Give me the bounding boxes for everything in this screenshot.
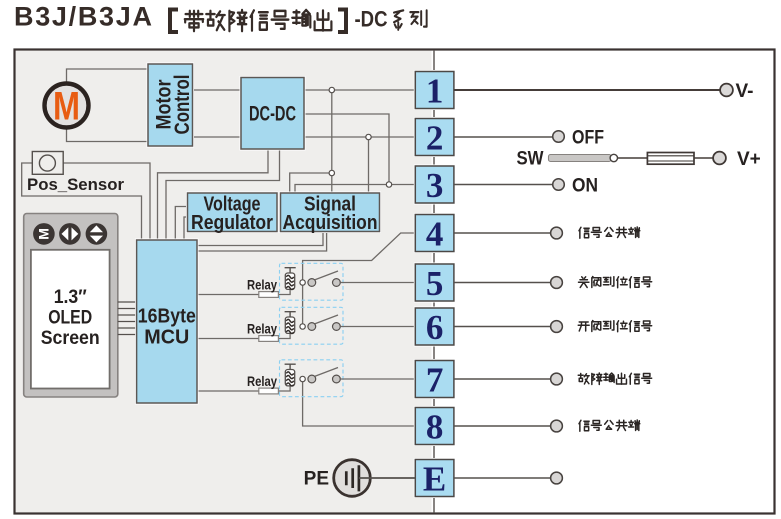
svg-text:Acquisition: Acquisition (283, 212, 378, 234)
svg-text:OFF: OFF (572, 127, 604, 149)
svg-text:Pos_Sensor: Pos_Sensor (27, 175, 124, 194)
svg-text:V-: V- (736, 81, 754, 102)
svg-text:7: 7 (426, 361, 444, 400)
svg-text:4: 4 (426, 215, 444, 254)
svg-text:M: M (53, 85, 80, 129)
svg-text:Screen: Screen (41, 327, 100, 349)
svg-text:SW: SW (517, 148, 545, 170)
svg-text:3: 3 (426, 166, 444, 205)
svg-text:Regulator: Regulator (191, 212, 273, 234)
svg-text:M: M (36, 228, 52, 240)
svg-text:16Byte: 16Byte (138, 306, 196, 328)
svg-text:1.3″: 1.3″ (54, 286, 87, 308)
svg-text:Relay: Relay (247, 373, 277, 389)
svg-text:Relay: Relay (247, 321, 277, 337)
svg-text:Control: Control (171, 75, 194, 135)
svg-text:6: 6 (426, 308, 444, 347)
svg-text:B3J/B3JA: B3J/B3JA (14, 2, 154, 32)
svg-text:5: 5 (426, 264, 444, 303)
svg-text:E: E (423, 460, 446, 499)
svg-text:2: 2 (426, 119, 444, 158)
svg-text:Relay: Relay (247, 277, 277, 293)
svg-text:8: 8 (426, 408, 444, 447)
svg-text:MCU: MCU (144, 327, 189, 349)
svg-text:V+: V+ (737, 149, 761, 170)
svg-text:DC-DC: DC-DC (249, 103, 296, 126)
svg-text:-DC: -DC (355, 7, 388, 32)
svg-text:1: 1 (426, 72, 444, 111)
svg-text:ON: ON (572, 175, 598, 197)
svg-text:PE: PE (304, 469, 329, 490)
svg-text:OLED: OLED (48, 307, 92, 329)
